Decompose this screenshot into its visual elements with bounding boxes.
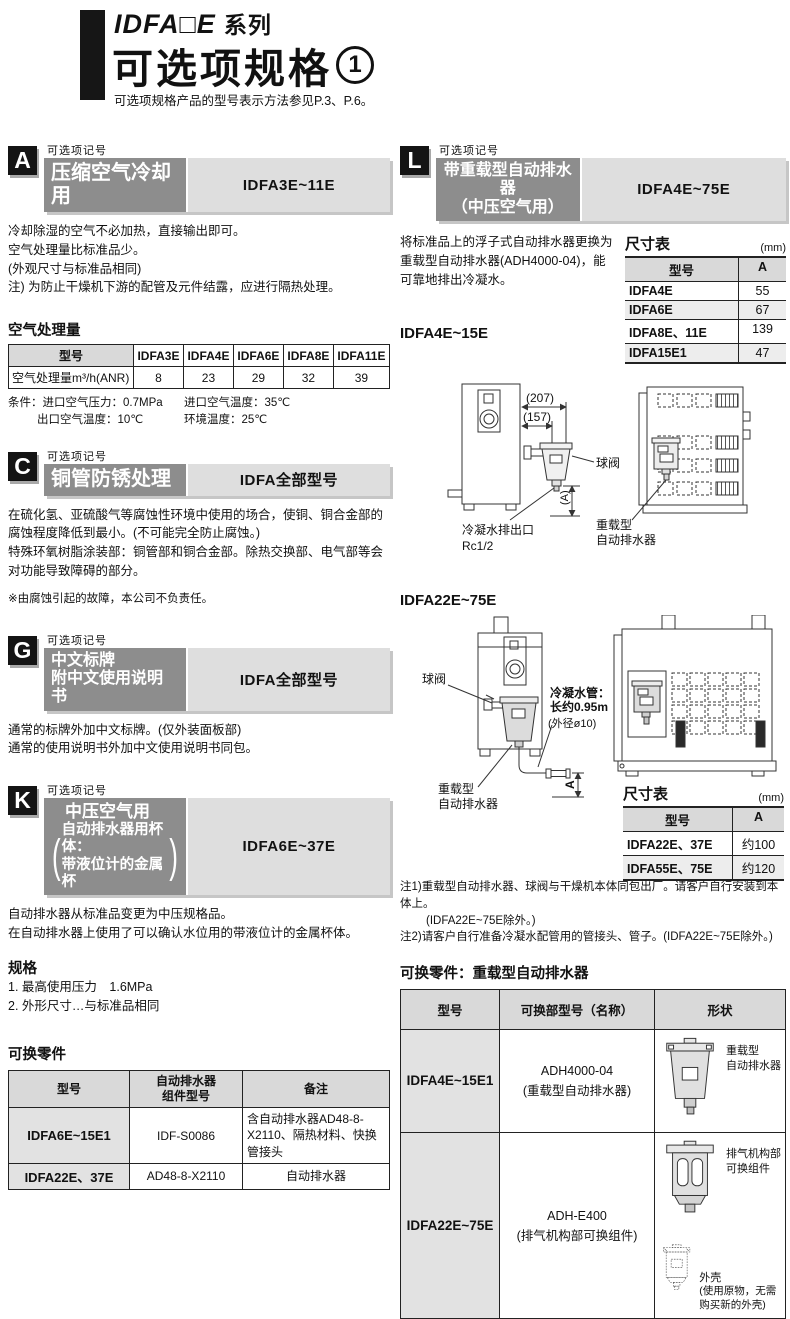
dim2-header-a: A: [732, 808, 784, 832]
section-l-body: 将标准品上的浮子式自动排水器更换为重载型自动排水器(ADH4000-04)，能可…: [400, 233, 614, 289]
dimension-table-2: 尺寸表 (mm) 型号 A IDFA22E、37E 约100 IDFA55E、7…: [623, 783, 784, 881]
dim1-row2-model: IDFA6E: [625, 301, 738, 320]
airflow-table: 型号 IDFA3E IDFA4E IDFA6E IDFA8E IDFA11E 空…: [8, 344, 390, 389]
dim1-row1-model: IDFA4E: [625, 282, 738, 301]
note-1: 注1)重载型自动排水器、球阀与干燥机本体同包出厂。请客户自行安装到本体上。: [400, 879, 786, 912]
replacement-parts-left: 可换零件 型号 自动排水器 组件型号 备注 IDFA6E~15E1 IDF-S0…: [8, 1043, 390, 1190]
parts-left-r1-part: IDF-S0086: [130, 1108, 243, 1164]
table-row: IDFA22E~75E ADH-E400 (排气机构部可换组件): [401, 1132, 786, 1319]
section-a-models: IDFA3E~11E: [186, 158, 390, 212]
option-mark-label: 可选项记号: [47, 782, 390, 798]
condition-inlet-temp: 进口空气温度：35℃: [184, 395, 390, 412]
dim1-row4-a: 47: [738, 344, 786, 362]
airflow-header-idfa11e: IDFA11E: [333, 345, 389, 367]
section-a-line2: 空气处理量比标准品少。: [8, 241, 390, 260]
page-note: 可选项规格产品的型号表示方法参见P.3、P.6。: [114, 90, 373, 109]
spec-line2: 2. 外形尺寸…与标准品相同: [8, 997, 390, 1016]
dim1-row3-model: IDFA8E、11E: [625, 320, 738, 344]
section-a-title: 压缩空气冷却用: [44, 158, 186, 212]
airflow-row-label: 空气处理量m³/h(ANR): [9, 367, 134, 389]
table-row: IDFA6E~15E1 IDF-S0086 含自动排水器AD48-8-X2110…: [9, 1108, 390, 1164]
paren-right: ): [169, 830, 178, 884]
option-mark-label: 可选项记号: [439, 142, 786, 158]
spec-title: 规格: [8, 957, 390, 978]
dim2-row2-a: 约120: [732, 856, 784, 879]
parts-right-h2: 可换部型号（名称）: [500, 989, 655, 1029]
parts-left-r2-model: IDFA22E、37E: [9, 1163, 130, 1189]
subtitle-idfa4e-15e: IDFA4E~15E: [400, 325, 614, 342]
section-g-models: IDFA全部型号: [186, 648, 390, 711]
section-c-para1: 在硫化氢、亚硫酸气等腐蚀性环境中使用的场合，使铜、铜合金部的腐蚀程度降低到最小。…: [8, 506, 390, 544]
dim-157-label: (157): [523, 410, 551, 424]
parts-right-r1-part2: (重载型自动排水器): [501, 1081, 653, 1101]
section-c-disclaimer: ※由腐蚀引起的故障，本公司不负责任。: [8, 590, 390, 606]
option-badge-k: K: [8, 786, 37, 815]
section-l-title-line2: （中压空气用）: [443, 199, 573, 217]
section-c-title: 铜管防锈处理: [44, 464, 186, 496]
dim-table-2-unit: (mm): [758, 792, 784, 804]
parts-right-r1-model: IDFA4E~15E1: [401, 1029, 500, 1132]
airflow-value-1: 8: [134, 367, 184, 389]
airflow-header-idfa3e: IDFA3E: [134, 345, 184, 367]
section-k-models: IDFA6E~37E: [186, 798, 390, 895]
page-title-text: 可选项规格: [112, 35, 332, 95]
dimension-table-1: 尺寸表 (mm) 型号 A IDFA4E 55 IDFA6E 67 IDFA8E…: [625, 233, 786, 364]
parts-right-h3: 形状: [655, 989, 786, 1029]
airflow-table-title: 空气处理量: [8, 319, 390, 340]
section-a: A 可选项记号 压缩空气冷却用 IDFA3E~11E 冷却除湿的空气不必加热，直…: [8, 142, 390, 430]
condition-ambient-temp: 环境温度：25℃: [184, 412, 390, 429]
option-mark-label: 可选项记号: [47, 142, 390, 158]
section-a-line1: 冷却除湿的空气不必加热，直接输出即可。: [8, 222, 390, 241]
section-k-para2: 在自动排水器上使用了可以确认水位用的带液位计的金属杯体。: [8, 924, 390, 943]
parts-right-r2-part: ADH-E400: [501, 1206, 653, 1226]
exhaust-mechanism-shape-icon: [659, 1139, 721, 1219]
spec-line1: 1. 最高使用压力 1.6MPa: [8, 978, 390, 997]
airflow-header-model: 型号: [9, 345, 134, 367]
heavy-drain-label-2: 自动排水器: [596, 533, 656, 547]
ball-valve-label: 球阀: [596, 456, 620, 470]
catalog-page: IDFA□E系列 可选项规格 1 可选项规格产品的型号表示方法参见P.3、P.6…: [0, 0, 790, 1176]
condition-outlet-temp: 出口空气温度：10℃: [8, 412, 184, 429]
dim-207-label: (207): [526, 391, 554, 405]
section-k-title-line2: 自动排水器用杯体：: [62, 822, 169, 857]
diagram2-area: 球阀 冷凝水管： 长约0.95m (外径ø10) A 重载型 自动排水器 尺寸表…: [400, 615, 786, 877]
table-row: IDFA22E、37E AD48-8-X2110 自动排水器: [9, 1163, 390, 1189]
airflow-value-5: 39: [333, 367, 389, 389]
section-g-para2: 通常的使用说明书外加中文使用说明书同包。: [8, 739, 390, 758]
option-mark-label: 可选项记号: [47, 448, 390, 464]
dim1-row2-a: 67: [738, 301, 786, 320]
section-g-title-line2: 附中文使用说明书: [51, 670, 179, 707]
section-c-para2: 特殊环氧树脂涂装部：铜管部和铜合金部。除热交换部、电气部等会对功能导致障碍的部分…: [8, 543, 390, 581]
tube-label-2: 长约0.95m: [550, 699, 608, 714]
housing-shape-icon: [659, 1225, 694, 1311]
section-c: C 可选项记号 铜管防锈处理 IDFA全部型号 在硫化氢、亚硫酸气等腐蚀性环境中…: [8, 448, 390, 606]
option-mark-label: 可选项记号: [47, 632, 390, 648]
airflow-header-idfa8e: IDFA8E: [283, 345, 333, 367]
airflow-value-4: 32: [283, 367, 333, 389]
tube-label-3: (外径ø10): [548, 717, 596, 730]
section-l-models: IDFA4E~75E: [580, 158, 787, 221]
parts-left-r2-part: AD48-8-X2110: [130, 1163, 243, 1189]
parts-left-r2-note: 自动排水器: [243, 1163, 390, 1189]
parts-right-h1: 型号: [401, 989, 500, 1029]
section-g: G 可选项记号 中文标牌 附中文使用说明书 IDFA全部型号 通常的标牌外加中文…: [8, 632, 390, 759]
diagram-idfa4e-15e: (207) (157) 球阀 (A) 冷凝水排出口 Rc1/2 重载型 自动排水…: [400, 374, 786, 582]
shape1-label-2: 自动排水器: [726, 1059, 781, 1074]
airflow-value-2: 23: [183, 367, 233, 389]
parts-right-title: 可换零件：重载型自动排水器: [400, 962, 786, 983]
table-row: IDFA4E~15E1 ADH4000-04 (重载型自动排水器): [401, 1029, 786, 1132]
dim-table-2-title: 尺寸表: [623, 783, 668, 804]
right-column: L 可选项记号 带重载型自动排水器 （中压空气用） IDFA4E~75E 将标准…: [400, 142, 786, 1319]
heavy-drain-label-1: 重载型: [596, 518, 632, 532]
heavy-drain-shape-icon: [659, 1036, 721, 1126]
note-2: 注2)请客户自行准备冷凝水配管用的管接头、管子。(IDFA22E~75E除外。): [400, 929, 786, 946]
parts-left-title: 可换零件: [8, 1043, 390, 1064]
parts-right-table: 型号 可换部型号（名称） 形状 IDFA4E~15E1 ADH4000-04 (…: [400, 989, 786, 1319]
parts-left-r1-note: 含自动排水器AD48-8-X2110、隔热材料、快换管接头: [243, 1108, 390, 1164]
dim1-header-a: A: [738, 258, 786, 282]
parts-right-r1-part: ADH4000-04: [501, 1061, 653, 1081]
subtitle-idfa22e-75e: IDFA22E~75E: [400, 592, 786, 609]
table-row: 空气处理量m³/h(ANR) 8 23 29 32 39: [9, 367, 390, 389]
rc12-label: Rc1/2: [462, 539, 494, 553]
heavy-drain-label2-2: 自动排水器: [438, 797, 498, 811]
parts-left-h3: 备注: [243, 1071, 390, 1108]
parts-left-h2: 自动排水器 组件型号: [130, 1071, 243, 1108]
section-k-title-line3: 带液位计的金属杯: [62, 857, 169, 892]
parts-left-table: 型号 自动排水器 组件型号 备注 IDFA6E~15E1 IDF-S0086 含…: [8, 1070, 390, 1190]
section-a-line4: 注) 为防止干燥机下游的配管及元件结露，应进行隔热处理。: [8, 278, 390, 297]
section-l: L 可选项记号 带重载型自动排水器 （中压空气用） IDFA4E~75E 将标准…: [400, 142, 786, 1319]
dim-table-1-unit: (mm): [760, 242, 786, 254]
shape3-label-note: (使用原物，无需购买新的外壳): [699, 1285, 781, 1312]
section-a-line3: (外观尺寸与标准品相同): [8, 260, 390, 279]
tube-label-1: 冷凝水管：: [550, 685, 610, 700]
page-title: 可选项规格 1: [112, 35, 374, 95]
dim-a-label: (A): [559, 491, 571, 506]
paren-left: (: [52, 830, 61, 884]
dim-a-label-2: A: [563, 780, 577, 789]
drain-outlet-label: 冷凝水排出口: [462, 522, 534, 537]
ball-valve-label-2: 球阀: [422, 672, 446, 686]
shape3-label-case: 外壳: [699, 1271, 781, 1285]
section-k-title-line1: 中压空气用: [65, 802, 179, 822]
dim2-header-model: 型号: [623, 808, 732, 832]
dim1-header-model: 型号: [625, 258, 738, 282]
option-badge-c: C: [8, 452, 37, 481]
left-column: A 可选项记号 压缩空气冷却用 IDFA3E~11E 冷却除湿的空气不必加热，直…: [8, 142, 390, 1190]
dim2-row1-model: IDFA22E、37E: [623, 832, 732, 856]
parts-right-r2-part2: (排气机构部可换组件): [501, 1226, 653, 1246]
dim2-row2-model: IDFA55E、75E: [623, 856, 732, 879]
airflow-header-idfa4e: IDFA4E: [183, 345, 233, 367]
section-k: K 可选项记号 中压空气用 ( 自动排水器用杯体： 带液位计的金属杯 ): [8, 782, 390, 1015]
option-badge-l: L: [400, 146, 429, 175]
section-l-notes: 注1)重载型自动排水器、球阀与干燥机本体同包出厂。请客户自行安装到本体上。 (I…: [400, 879, 786, 946]
shape2-label-1: 排气机构部: [726, 1147, 781, 1162]
circled-one-icon: 1: [336, 46, 374, 84]
note-1b: (IDFA22E~75E除外。): [400, 913, 786, 930]
option-badge-a: A: [8, 146, 37, 175]
airflow-value-3: 29: [233, 367, 283, 389]
dim1-row3-a: 139: [738, 320, 786, 344]
section-l-title-line1: 带重载型自动排水器: [443, 162, 573, 199]
parts-left-r1-model: IDFA6E~15E1: [9, 1108, 130, 1164]
parts-left-h1: 型号: [9, 1071, 130, 1108]
condition-inlet-pressure: 条件：进口空气压力：0.7MPa: [8, 395, 184, 412]
parts-right-r2-model: IDFA22E~75E: [401, 1132, 500, 1319]
section-g-title-line1: 中文标牌: [51, 652, 179, 670]
airflow-header-idfa6e: IDFA6E: [233, 345, 283, 367]
dim1-row1-a: 55: [738, 282, 786, 301]
dim-table-1-title: 尺寸表: [625, 233, 670, 254]
airflow-conditions: 条件：进口空气压力：0.7MPa 进口空气温度：35℃ 出口空气温度：10℃ 环…: [8, 395, 390, 430]
dim1-row4-model: IDFA15E1: [625, 344, 738, 362]
heavy-drain-label2-1: 重载型: [438, 782, 474, 796]
section-c-models: IDFA全部型号: [186, 464, 390, 496]
shape2-label-2: 可换组件: [726, 1162, 781, 1177]
page-edge-mark: [80, 10, 105, 100]
option-badge-g: G: [8, 636, 37, 665]
dim2-row1-a: 约100: [732, 832, 784, 856]
section-g-para1: 通常的标牌外加中文标牌。(仅外装面板部): [8, 721, 390, 740]
shape1-label-1: 重载型: [726, 1044, 781, 1059]
section-k-para1: 自动排水器从标准品变更为中压规格品。: [8, 905, 390, 924]
